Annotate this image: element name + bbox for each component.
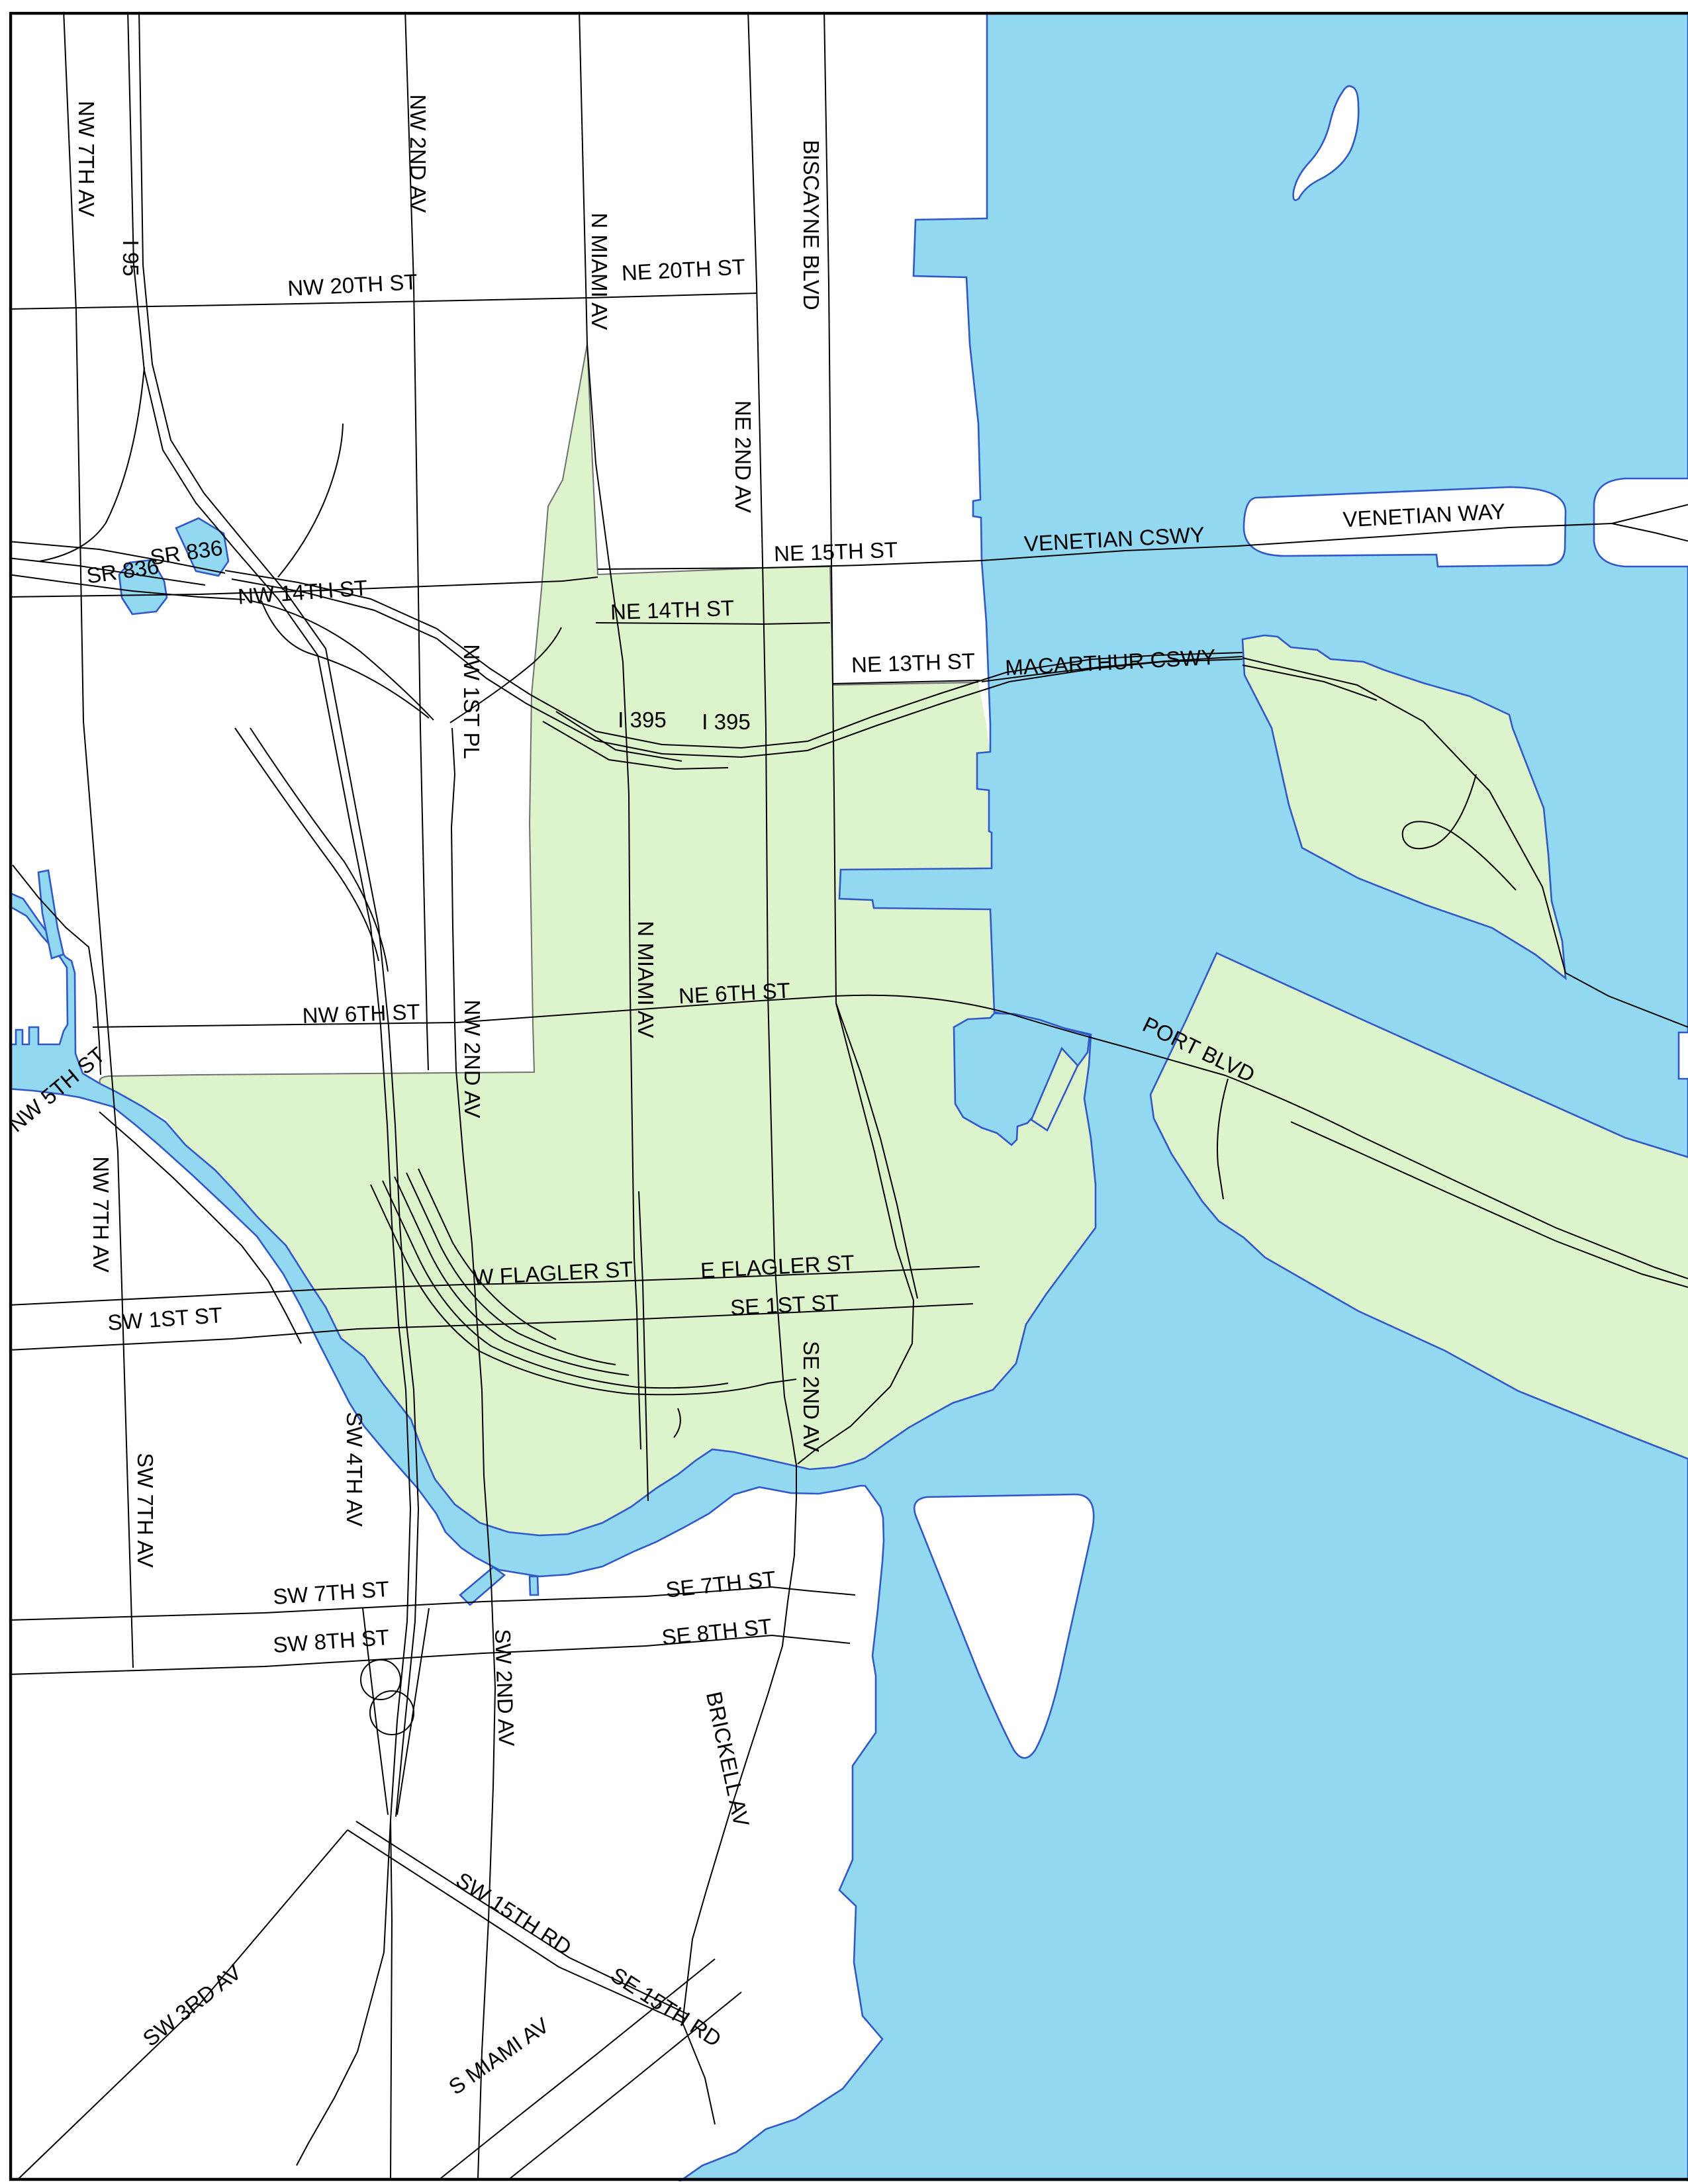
svg-text:N MIAMI AV: N MIAMI AV — [587, 212, 612, 330]
svg-text:SE 2ND AV: SE 2ND AV — [799, 1341, 823, 1452]
svg-text:I 395: I 395 — [702, 709, 750, 734]
svg-text:NE 15TH ST: NE 15TH ST — [773, 537, 898, 567]
svg-text:NE 13TH ST: NE 13TH ST — [851, 649, 975, 678]
svg-text:SW 4TH AV: SW 4TH AV — [342, 1412, 367, 1527]
svg-text:NE 2ND AV: NE 2ND AV — [731, 400, 755, 513]
svg-text:NW 6TH ST: NW 6TH ST — [302, 999, 420, 1028]
svg-text:SW 7TH AV: SW 7TH AV — [133, 1453, 158, 1568]
svg-text:NE 14TH ST: NE 14TH ST — [610, 596, 734, 625]
svg-text:N MIAMI AV: N MIAMI AV — [633, 921, 658, 1038]
svg-text:NW 7TH AV: NW 7TH AV — [89, 1156, 113, 1272]
svg-text:NW 2ND AV: NW 2ND AV — [406, 94, 430, 212]
svg-text:NW 7TH AV: NW 7TH AV — [74, 101, 99, 216]
svg-text:SW 2ND AV: SW 2ND AV — [491, 1629, 519, 1747]
svg-text:NW 2ND AV: NW 2ND AV — [460, 999, 485, 1118]
svg-text:I 95: I 95 — [118, 240, 143, 276]
svg-text:BISCAYNE BLVD: BISCAYNE BLVD — [799, 140, 823, 310]
svg-text:I 395: I 395 — [618, 707, 666, 732]
svg-text:NW 1ST PL: NW 1ST PL — [459, 644, 484, 759]
